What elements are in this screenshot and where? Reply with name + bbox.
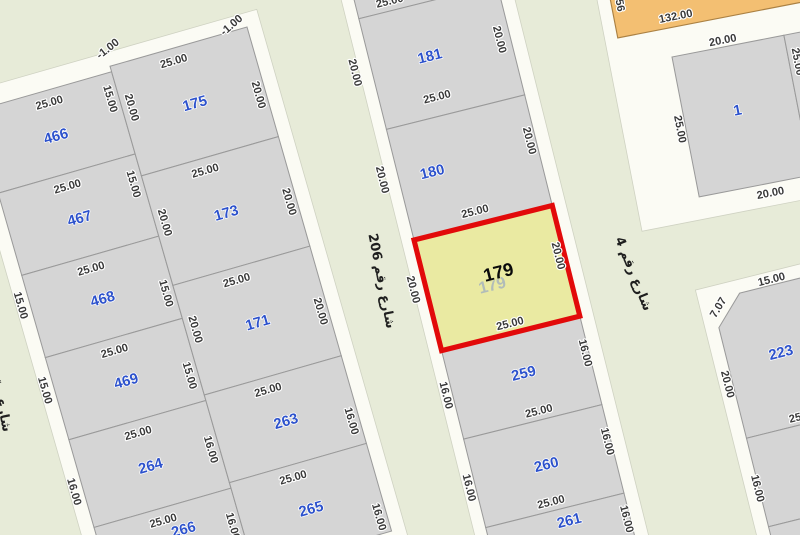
cadastral-map: 46625.0015.0046725.0015.0046825.0015.001… <box>0 0 800 535</box>
map-viewport: 46625.0015.0046725.0015.0046825.0015.001… <box>0 0 800 535</box>
